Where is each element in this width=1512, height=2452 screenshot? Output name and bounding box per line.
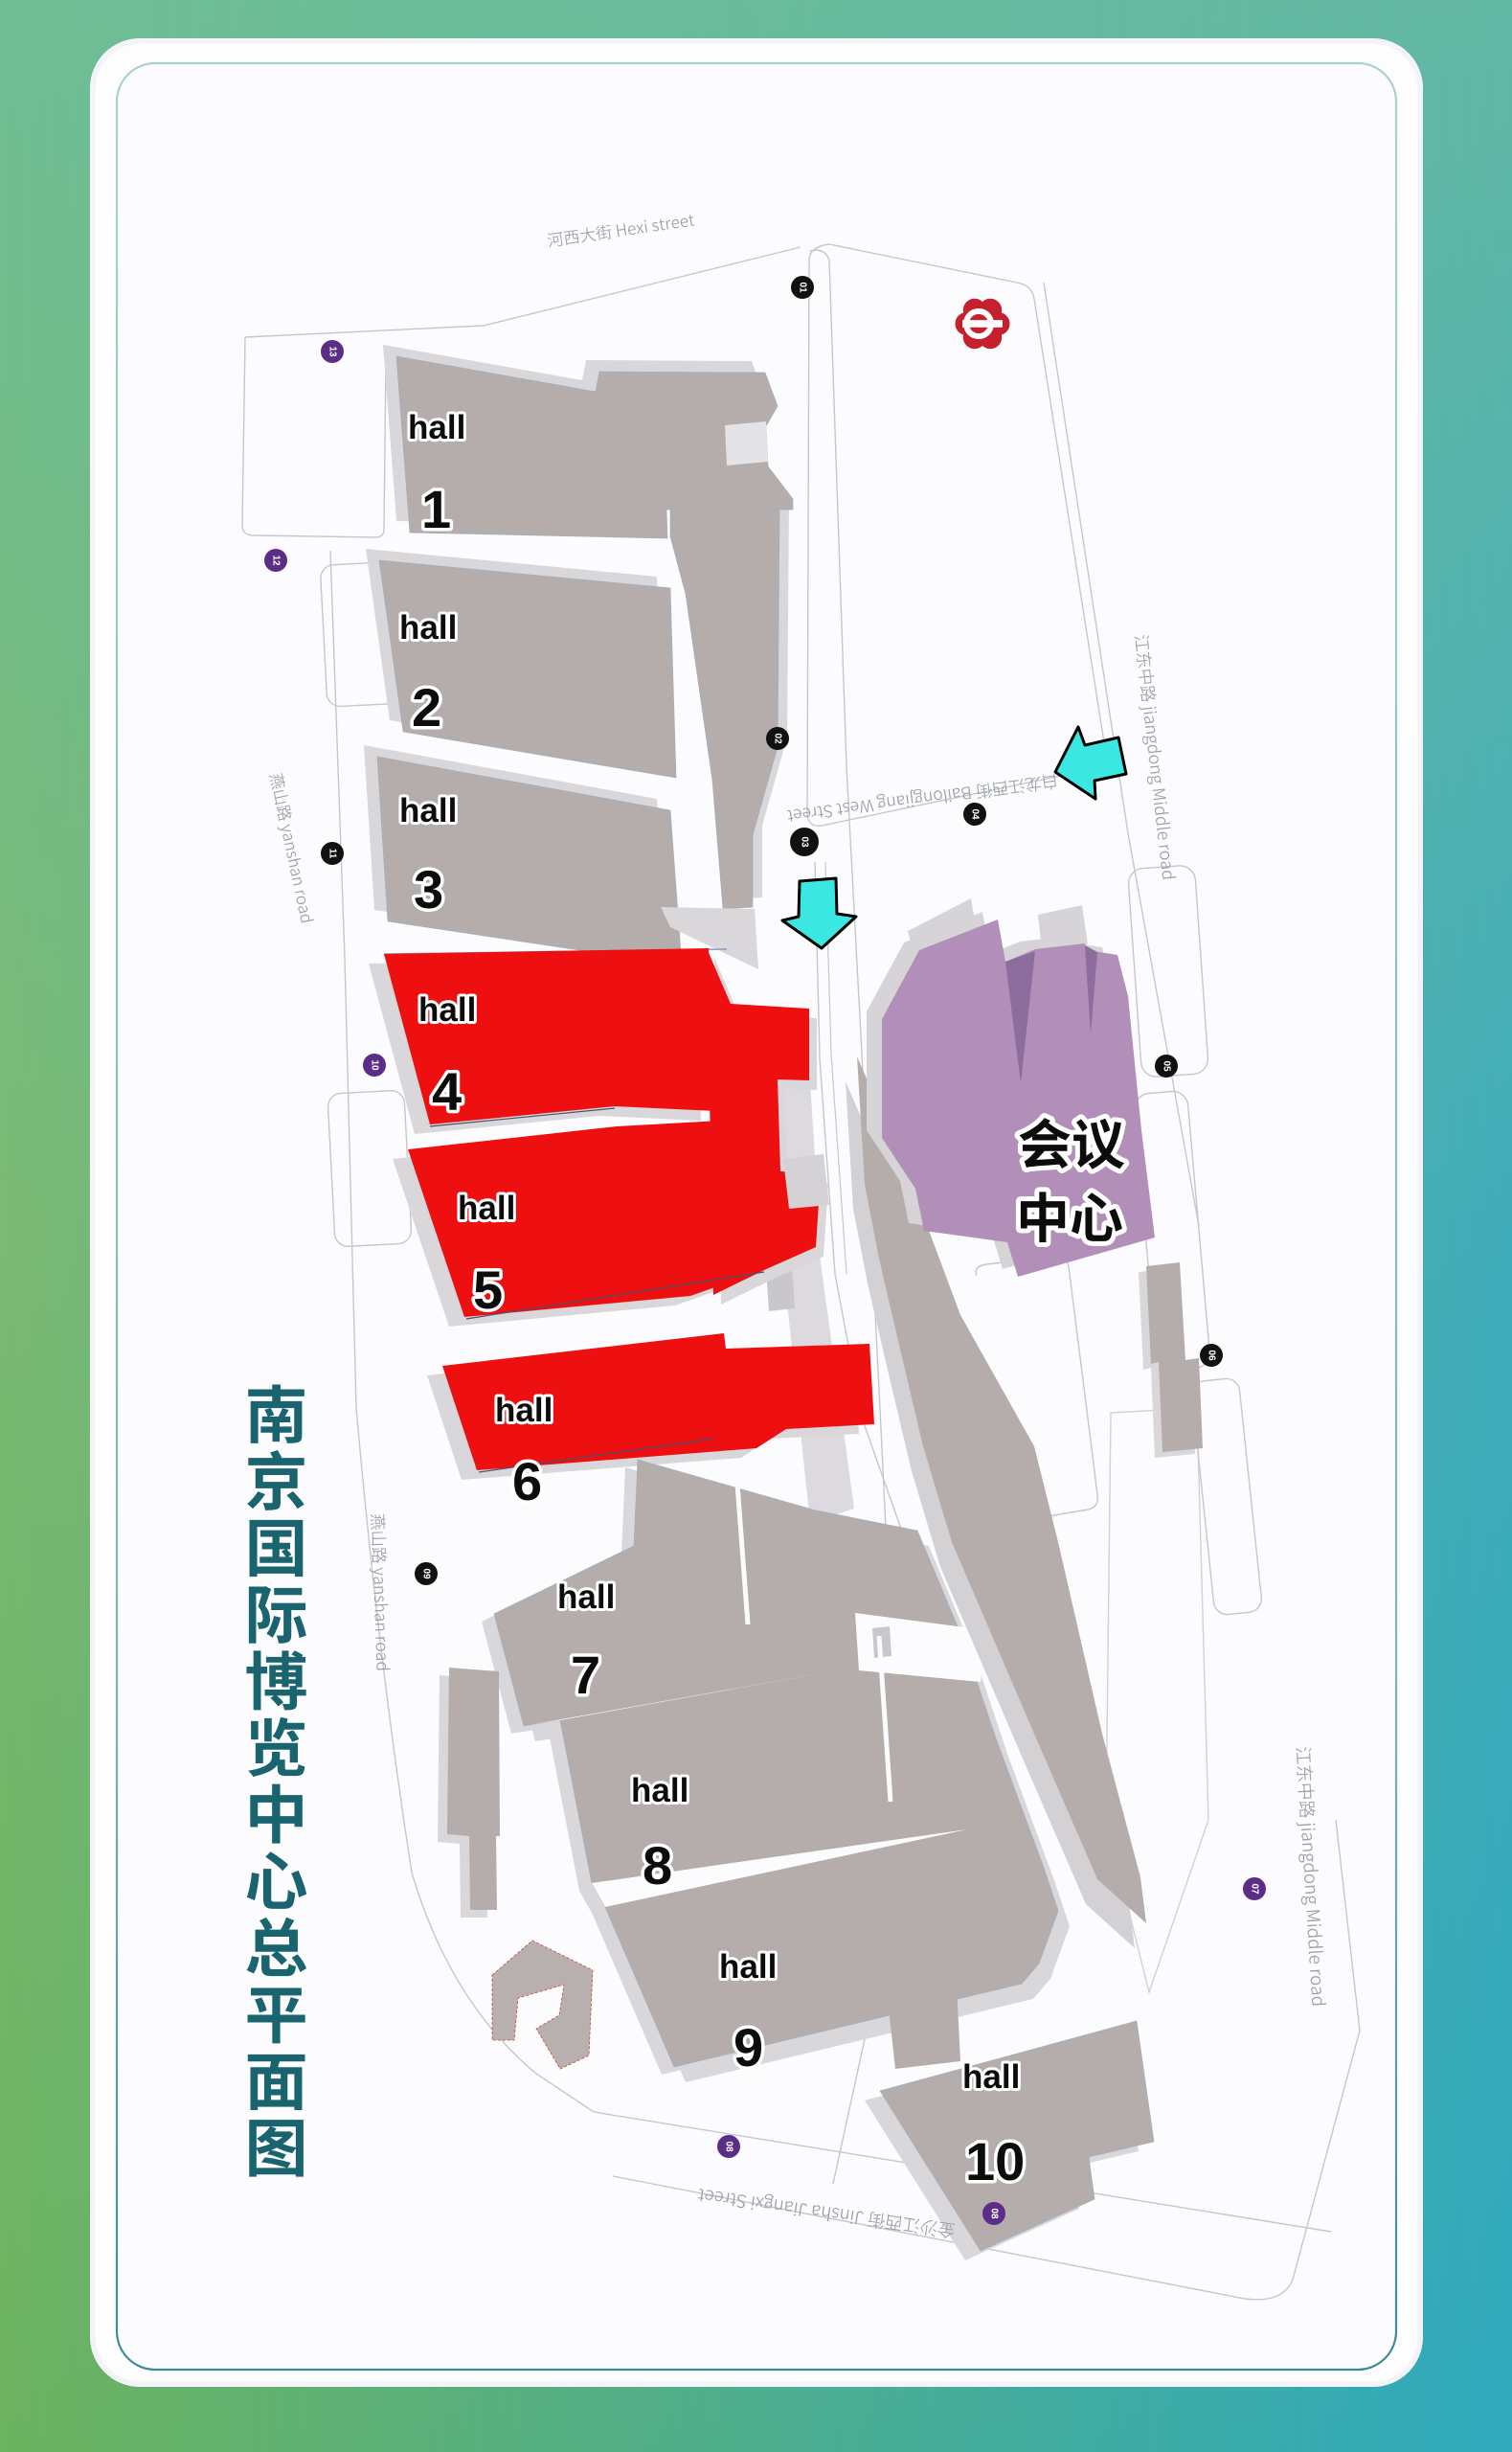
svg-text:4: 4 bbox=[432, 1061, 462, 1122]
svg-text:7: 7 bbox=[571, 1645, 600, 1705]
svg-text:12: 12 bbox=[271, 555, 282, 566]
svg-text:05: 05 bbox=[1162, 1060, 1172, 1072]
svg-text:hall: hall bbox=[719, 1948, 777, 1986]
svg-text:6: 6 bbox=[512, 1451, 542, 1511]
svg-text:13: 13 bbox=[327, 346, 338, 357]
svg-text:hall: hall bbox=[557, 1578, 615, 1616]
svg-text:hall: hall bbox=[408, 409, 465, 446]
svg-text:2: 2 bbox=[412, 677, 441, 738]
svg-text:09: 09 bbox=[421, 1568, 432, 1579]
svg-text:hall: hall bbox=[418, 991, 476, 1029]
svg-text:08: 08 bbox=[989, 2208, 1000, 2219]
svg-text:8: 8 bbox=[643, 1835, 672, 1896]
svg-text:9: 9 bbox=[733, 2017, 763, 2077]
svg-text:hall: hall bbox=[458, 1190, 515, 1227]
svg-text:1: 1 bbox=[421, 479, 451, 539]
svg-text:02: 02 bbox=[773, 733, 783, 744]
svg-text:hall: hall bbox=[962, 2058, 1020, 2096]
svg-text:10: 10 bbox=[370, 1059, 380, 1071]
svg-text:04: 04 bbox=[970, 808, 981, 820]
svg-text:hall: hall bbox=[399, 792, 457, 829]
svg-text:10: 10 bbox=[965, 2131, 1025, 2191]
svg-text:06: 06 bbox=[1207, 1350, 1217, 1361]
svg-text:01: 01 bbox=[798, 282, 808, 293]
svg-text:5: 5 bbox=[473, 1260, 503, 1320]
svg-text:hall: hall bbox=[495, 1392, 553, 1429]
svg-text:hall: hall bbox=[631, 1772, 688, 1809]
svg-text:11: 11 bbox=[327, 849, 338, 859]
svg-text:03: 03 bbox=[800, 836, 810, 848]
svg-text:hall: hall bbox=[399, 609, 457, 647]
svg-text:3: 3 bbox=[414, 859, 443, 919]
svg-text:07: 07 bbox=[1250, 1883, 1260, 1895]
svg-text:08: 08 bbox=[724, 2141, 734, 2152]
